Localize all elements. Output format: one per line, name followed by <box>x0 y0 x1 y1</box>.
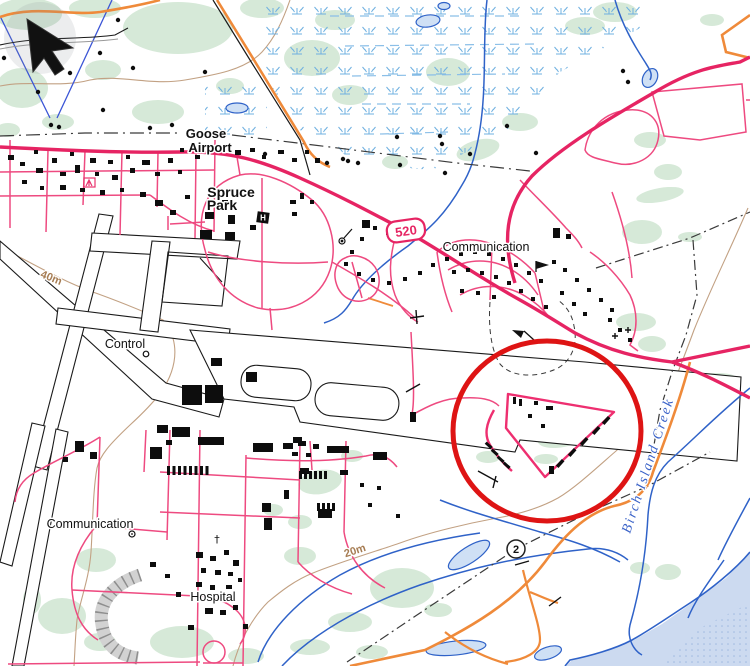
label-hospital: Hospital <box>190 590 235 604</box>
trail-marker-2-number: 2 <box>513 544 519 556</box>
label-communication-north: Communication <box>443 240 530 254</box>
label-goose: Goose <box>186 126 226 141</box>
map-viewport[interactable]: H † Goose Airport Spruce Park Communicat… <box>0 0 750 666</box>
helipad-letter: H <box>260 214 266 223</box>
route-shield-520-number: 520 <box>394 222 418 240</box>
label-control: Control <box>105 337 145 351</box>
label-airport: Airport <box>188 140 232 155</box>
helipad-icon: H <box>256 211 269 224</box>
church-cross-icon: † <box>214 533 220 546</box>
trail-marker-2: 2 <box>507 540 525 558</box>
label-communication-south: Communication <box>47 517 134 531</box>
route-shield-520: 520 <box>386 217 427 243</box>
label-park: Park <box>207 197 238 213</box>
